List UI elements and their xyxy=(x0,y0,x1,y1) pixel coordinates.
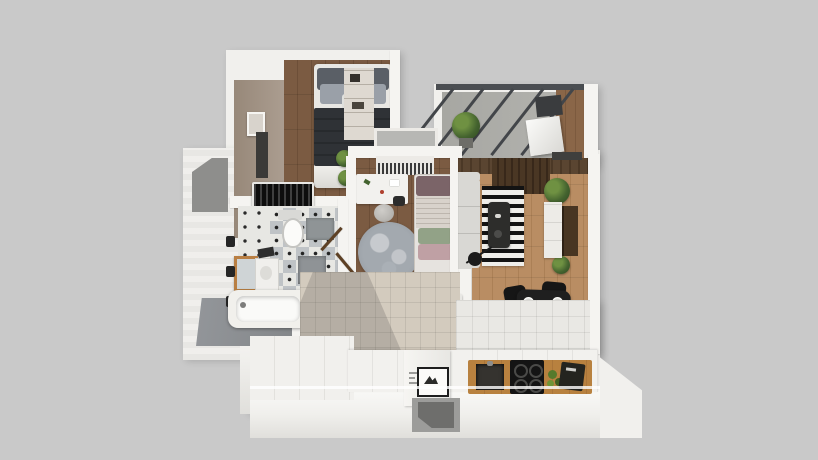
single-bed-striped-blanket xyxy=(416,196,452,228)
kidsroom-east-wall xyxy=(450,156,458,278)
balcony-door-threshold xyxy=(552,152,582,160)
desk-red-item xyxy=(380,190,384,194)
fridge-note-mark xyxy=(409,382,417,384)
bathtub-basin xyxy=(236,296,300,322)
burner-icon xyxy=(514,364,528,378)
single-bed-green-pillow xyxy=(418,228,452,244)
vegetable-icon xyxy=(548,370,557,379)
balcony-ac-unit xyxy=(526,116,565,156)
wall-hook-icon xyxy=(226,266,235,277)
wardrobe-item-dark-2 xyxy=(352,102,364,109)
desk-paper-item xyxy=(390,180,399,186)
stool xyxy=(374,204,394,222)
balcony-shrub-icon xyxy=(452,112,480,140)
living-plant-tall-icon xyxy=(544,178,570,204)
single-bed-headrest xyxy=(416,176,452,196)
front-wall-edge-highlight xyxy=(250,386,600,389)
fridge-note-mark xyxy=(409,372,417,374)
balcony-storage-box xyxy=(535,95,563,118)
sofa-seat-cushions xyxy=(458,180,480,260)
living-plant-small-icon xyxy=(552,256,570,274)
coffee-table-bowl xyxy=(494,230,502,238)
single-bed-pink-pillow xyxy=(418,244,452,260)
toilet-bowl xyxy=(282,218,304,248)
kitchen-counter-left xyxy=(250,336,354,400)
living-wall-tv-panel xyxy=(562,206,578,256)
sink-basin xyxy=(260,266,272,280)
sink-faucet-icon xyxy=(487,361,493,366)
coffee-table-item xyxy=(495,214,501,218)
wall-hook-icon xyxy=(226,236,235,247)
tv-cabinet xyxy=(544,202,562,258)
bathtub-faucet-icon xyxy=(240,302,246,308)
balcony-east-wall xyxy=(584,84,598,164)
bedroom-wall-tv xyxy=(256,132,268,178)
floor-plan-scene xyxy=(0,0,818,460)
desk-chair xyxy=(393,196,405,206)
burner-icon xyxy=(529,364,543,378)
sideboard-top xyxy=(376,156,434,163)
fridge-note-mark xyxy=(409,377,415,379)
wardrobe-item-dark xyxy=(350,74,360,82)
coffee-table xyxy=(488,202,510,248)
